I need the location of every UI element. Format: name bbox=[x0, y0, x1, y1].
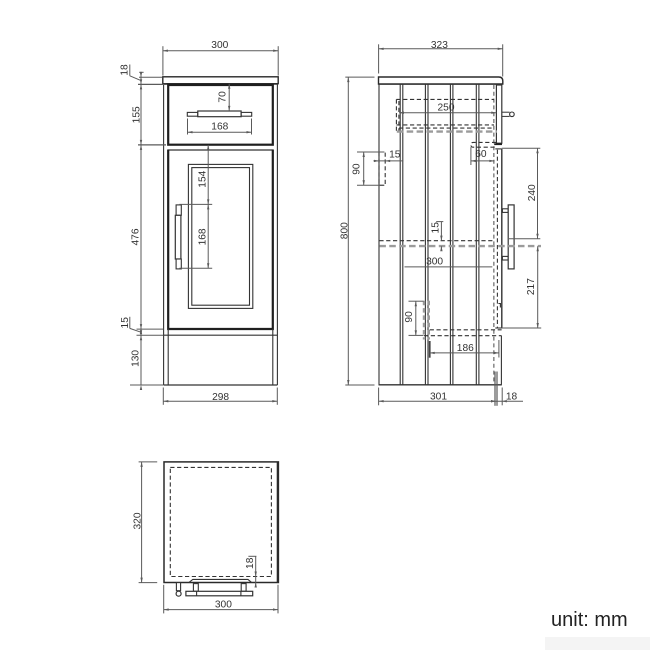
svg-text:298: 298 bbox=[212, 392, 229, 403]
svg-text:301: 301 bbox=[430, 391, 447, 402]
svg-text:320: 320 bbox=[133, 512, 144, 529]
svg-text:18: 18 bbox=[120, 64, 131, 76]
svg-text:90: 90 bbox=[404, 311, 415, 323]
svg-text:186: 186 bbox=[457, 343, 474, 354]
svg-text:300: 300 bbox=[211, 40, 228, 51]
svg-text:130: 130 bbox=[130, 350, 141, 367]
svg-text:70: 70 bbox=[217, 91, 228, 103]
svg-text:18: 18 bbox=[506, 391, 518, 402]
svg-text:800: 800 bbox=[339, 222, 350, 239]
svg-text:300: 300 bbox=[215, 599, 232, 610]
svg-text:unit: mm: unit: mm bbox=[551, 609, 628, 631]
svg-text:154: 154 bbox=[197, 170, 208, 187]
svg-text:168: 168 bbox=[211, 122, 228, 133]
svg-text:18: 18 bbox=[245, 557, 256, 569]
svg-text:15: 15 bbox=[389, 149, 401, 160]
svg-text:15: 15 bbox=[431, 222, 442, 234]
svg-text:240: 240 bbox=[527, 184, 538, 201]
svg-text:300: 300 bbox=[426, 256, 443, 267]
svg-text:323: 323 bbox=[431, 40, 448, 51]
svg-text:155: 155 bbox=[132, 106, 143, 123]
svg-text:168: 168 bbox=[198, 228, 209, 245]
svg-text:217: 217 bbox=[526, 278, 537, 295]
svg-text:250: 250 bbox=[438, 102, 455, 113]
svg-text:60: 60 bbox=[475, 149, 487, 160]
svg-text:476: 476 bbox=[131, 228, 142, 245]
svg-text:90: 90 bbox=[351, 163, 362, 175]
svg-text:15: 15 bbox=[120, 317, 131, 329]
